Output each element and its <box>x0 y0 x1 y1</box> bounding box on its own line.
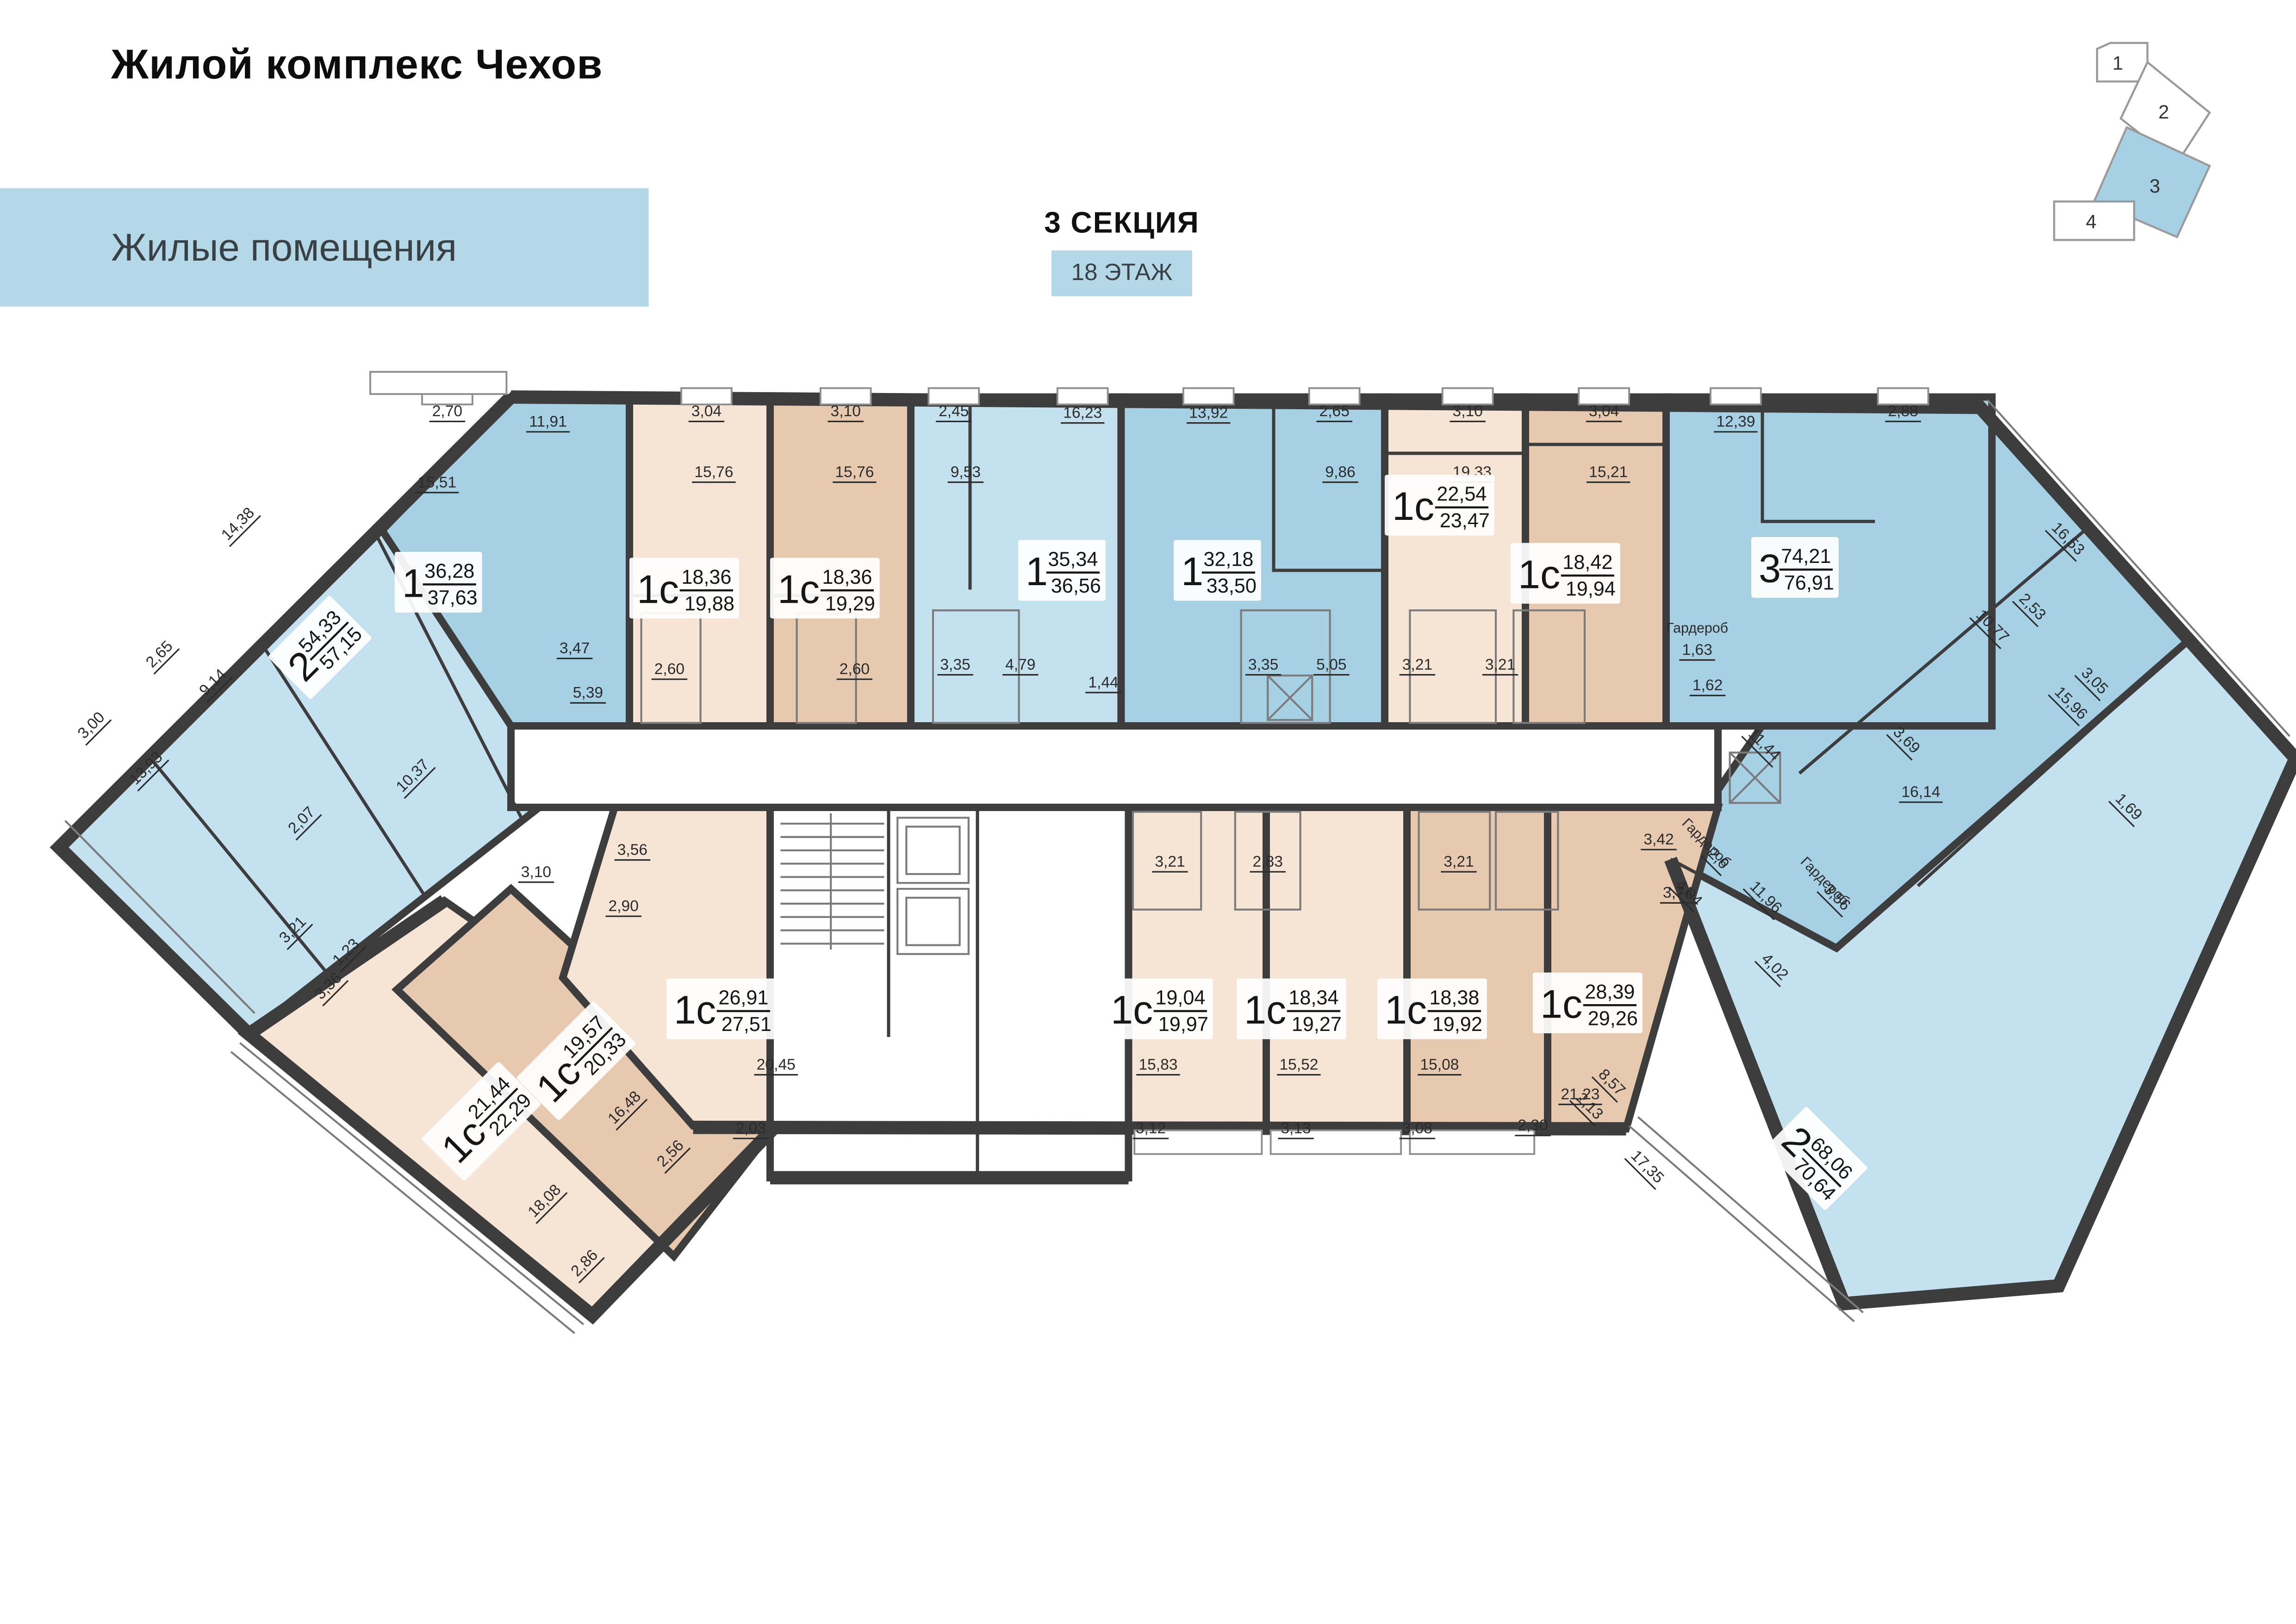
apartment-type: 1с <box>1111 988 1153 1032</box>
svg-text:3,42: 3,42 <box>1643 831 1674 848</box>
dimension-label: 3,12 <box>1133 1120 1169 1138</box>
apartment-area[interactable] <box>1266 807 1407 1126</box>
apartment-label[interactable]: 1с18,4219,94 <box>1511 543 1620 604</box>
apartment-area-top: 18,36 <box>681 566 731 588</box>
svg-text:2,70: 2,70 <box>432 403 462 420</box>
svg-text:3,10: 3,10 <box>1453 403 1483 420</box>
dimension-label: 2,65 <box>141 636 179 674</box>
minimap: 1 2 3 4 <box>2054 43 2209 240</box>
svg-text:3,00: 3,00 <box>75 709 108 742</box>
apartment-type: 1с <box>778 567 820 612</box>
legend-banner: Жилые помещения <box>0 188 649 306</box>
dimension-label: 9,53 <box>948 463 983 482</box>
dimension-label: 16,14 <box>1899 784 1942 802</box>
dimension-label: 2,60 <box>652 661 687 679</box>
apartment-label[interactable]: 1с26,9127,51 <box>666 979 776 1039</box>
apartment-label[interactable]: 1с18,3619,88 <box>629 558 739 618</box>
apartment-type: 1с <box>1392 484 1434 529</box>
svg-text:3,21: 3,21 <box>1155 853 1185 870</box>
apartment-area-top: 35,34 <box>1048 548 1098 570</box>
dimension-label: 3,21 <box>1152 853 1188 872</box>
apartment-label[interactable]: 132,1833,50 <box>1174 540 1261 600</box>
apartment-type: 1с <box>674 988 716 1032</box>
svg-text:3,35: 3,35 <box>1248 656 1278 673</box>
apartment-area-top: 32,18 <box>1203 548 1253 570</box>
dimension-label: 3,21 <box>1441 853 1476 872</box>
section-title: 3 СЕКЦИЯ <box>963 207 1281 242</box>
apartment-area-bottom: 76,91 <box>1784 572 1834 594</box>
dimension-label: 2,60 <box>837 661 872 679</box>
svg-text:11,91: 11,91 <box>529 413 567 431</box>
apartment-area[interactable] <box>1548 807 1718 1129</box>
apartment-area-top: 26,91 <box>718 987 768 1009</box>
apartment-type: 1с <box>637 567 679 612</box>
svg-text:16,23: 16,23 <box>1063 404 1102 421</box>
dimension-label: 3,35 <box>937 656 973 675</box>
dimension-label: 15,51 <box>415 474 459 493</box>
minimap-section-label: 1 <box>2112 52 2123 74</box>
apartment-area-bottom: 27,51 <box>722 1013 772 1036</box>
dimension-label: 3,35 <box>1245 656 1281 675</box>
svg-text:9,86: 9,86 <box>1325 463 1355 481</box>
apartment-area-top: 19,04 <box>1155 987 1205 1009</box>
minimap-section-label: 3 <box>2149 175 2160 197</box>
svg-text:3,21: 3,21 <box>1485 656 1515 673</box>
apartment-area-bottom: 19,27 <box>1292 1013 1342 1036</box>
dimension-label: 2,90 <box>605 898 641 916</box>
apartment-area-bottom: 29,26 <box>1588 1007 1638 1030</box>
svg-text:2,03: 2,03 <box>736 1120 766 1137</box>
floorplan-page: 2,7011,913,043,102,4516,2313,922,653,103… <box>0 0 2296 1624</box>
dimension-label: 5,05 <box>1313 656 1349 675</box>
dimension-label: 3,56 <box>615 841 650 860</box>
dimension-label: 16,23 <box>1061 404 1104 423</box>
svg-text:16,14: 16,14 <box>1901 784 1940 801</box>
dimension-label: 2,30 <box>1515 1117 1550 1136</box>
svg-text:1,63: 1,63 <box>1682 641 1712 658</box>
svg-text:2,60: 2,60 <box>654 661 684 678</box>
apartment-area-bottom: 19,94 <box>1566 578 1616 600</box>
dimension-label: 3,47 <box>557 640 592 658</box>
dimension-label: 2,70 <box>429 403 465 421</box>
svg-text:15,76: 15,76 <box>694 463 733 481</box>
svg-text:3,10: 3,10 <box>831 403 861 420</box>
svg-text:15,76: 15,76 <box>835 463 874 481</box>
apartment-area-bottom: 23,47 <box>1440 510 1490 532</box>
svg-text:15,83: 15,83 <box>1139 1056 1177 1073</box>
dimension-label: 1,62 <box>1690 677 1725 695</box>
dimension-label: 2,45 <box>936 403 971 421</box>
svg-text:15,08: 15,08 <box>1420 1056 1459 1073</box>
dimension-label: 3,10 <box>518 863 554 882</box>
dimension-label: 13,92 <box>1187 404 1230 423</box>
svg-text:3,21: 3,21 <box>1444 853 1474 870</box>
apartment-area-bottom: 19,97 <box>1158 1013 1208 1036</box>
apartment-type: 1с <box>1540 982 1582 1026</box>
svg-text:2,45: 2,45 <box>939 403 969 420</box>
dimension-label: 3,04 <box>1586 403 1622 421</box>
svg-text:2,65: 2,65 <box>143 637 176 671</box>
corridor <box>511 726 1718 807</box>
floor-chip[interactable]: 18 ЭТАЖ <box>1052 250 1192 296</box>
dimension-label: 3,08 <box>1400 1120 1435 1138</box>
svg-text:15,21: 15,21 <box>1589 463 1628 481</box>
apartment-type: 1 <box>1026 550 1048 594</box>
svg-text:3,08: 3,08 <box>1402 1120 1432 1137</box>
svg-text:12,39: 12,39 <box>1716 413 1755 431</box>
svg-text:2,65: 2,65 <box>1319 403 1350 420</box>
dimension-label: 15,08 <box>1418 1056 1461 1074</box>
dimension-label: 2,03 <box>733 1120 769 1138</box>
apartment-label[interactable]: 1с19,0419,97 <box>1103 979 1213 1039</box>
apartment-area-bottom: 36,56 <box>1051 575 1101 597</box>
svg-text:1,62: 1,62 <box>1692 677 1723 694</box>
minimap-section-label: 2 <box>2159 101 2169 123</box>
apartment-area-top: 18,38 <box>1429 987 1479 1009</box>
apartment-area-top: 36,28 <box>424 560 474 582</box>
dimension-label: 2,65 <box>1316 403 1352 421</box>
apartment-label[interactable]: 136,2837,63 <box>395 552 482 612</box>
svg-text:4,79: 4,79 <box>1005 656 1035 673</box>
apartment-area-bottom: 19,29 <box>825 593 875 615</box>
apartment-label[interactable]: 1с18,3419,27 <box>1237 979 1346 1039</box>
legend-banner-text: Жилые помещения <box>111 225 457 270</box>
svg-text:Гардероб: Гардероб <box>1666 620 1728 636</box>
dimension-label: 15,21 <box>1587 463 1630 482</box>
apartment-type: 3 <box>1759 547 1781 591</box>
apartment-area-top: 74,21 <box>1781 545 1831 568</box>
svg-text:3,10: 3,10 <box>521 863 551 881</box>
apartment-area[interactable] <box>1385 397 1525 726</box>
apartment-area-top: 18,42 <box>1562 551 1612 574</box>
svg-text:3,35: 3,35 <box>940 656 970 673</box>
apartment-label[interactable]: 1с22,5423,47 <box>1385 475 1494 536</box>
minimap-section-label: 4 <box>2086 211 2097 232</box>
dimension-label: 4,79 <box>1002 656 1038 675</box>
apartment-label[interactable]: 135,3436,56 <box>1018 540 1106 600</box>
dimension-label: 3,10 <box>1450 403 1485 421</box>
dimension-label: 3,21 <box>1400 656 1435 675</box>
page-title: Жилой комплекс Чехов <box>111 42 603 89</box>
apartment-type: 1с <box>1385 988 1427 1032</box>
apartment-area[interactable] <box>1128 807 1266 1126</box>
dimension-label: 1,63 <box>1679 641 1715 660</box>
svg-text:3,13: 3,13 <box>1281 1120 1311 1137</box>
dimension-label: 15,52 <box>1277 1056 1320 1074</box>
dimension-label: 15,83 <box>1136 1056 1180 1074</box>
svg-text:3,56: 3,56 <box>617 841 647 858</box>
dimension-label: 17,35 <box>1625 1145 1669 1189</box>
svg-text:2,30: 2,30 <box>1518 1117 1548 1134</box>
svg-text:3,12: 3,12 <box>1136 1120 1166 1137</box>
svg-text:2,88: 2,88 <box>1888 403 1918 420</box>
svg-text:3,04: 3,04 <box>691 403 722 420</box>
apartment-area[interactable] <box>1407 807 1548 1126</box>
dimension-label: 15,76 <box>692 463 735 482</box>
dimension-label: 3,04 <box>689 403 724 421</box>
apartment-type: 1с <box>1244 988 1286 1032</box>
dimension-label: 3,21 <box>1482 656 1518 675</box>
apartment-label[interactable]: 1с18,3619,29 <box>770 558 880 618</box>
dimension-label: 15,76 <box>833 463 876 482</box>
apartment-label[interactable]: 1с28,3929,26 <box>1533 973 1643 1033</box>
svg-text:3,47: 3,47 <box>560 640 590 657</box>
svg-text:9,53: 9,53 <box>951 463 981 481</box>
svg-text:3,04: 3,04 <box>1589 403 1619 420</box>
dimension-label: 2,88 <box>1885 403 1921 421</box>
dimension-label: 20,45 <box>754 1056 798 1074</box>
dimension-label: 2,83 <box>1250 853 1285 872</box>
apartment-area-top: 18,36 <box>822 566 872 588</box>
svg-text:2,83: 2,83 <box>1253 853 1283 870</box>
apartment-area-top: 22,54 <box>1437 483 1487 506</box>
apartment-area-bottom: 37,63 <box>428 587 478 609</box>
dimension-label: 11,91 <box>526 413 570 432</box>
apartment-label[interactable]: 1с18,3819,92 <box>1377 979 1487 1039</box>
apartment-area-bottom: 19,88 <box>684 593 734 615</box>
dimension-label: 3,13 <box>1278 1120 1313 1138</box>
svg-text:20,45: 20,45 <box>757 1056 796 1073</box>
apartment-label[interactable]: 374,2176,91 <box>1751 537 1839 598</box>
dimension-label: 14,38 <box>217 502 261 546</box>
svg-text:1,44: 1,44 <box>1088 674 1118 691</box>
svg-text:15,51: 15,51 <box>417 474 456 491</box>
svg-text:5,05: 5,05 <box>1316 656 1346 673</box>
dimension-label: 5,39 <box>570 684 606 703</box>
svg-text:5,39: 5,39 <box>573 684 603 701</box>
apartment-area-top: 28,39 <box>1585 981 1635 1003</box>
svg-text:2,60: 2,60 <box>840 661 870 678</box>
svg-text:13,92: 13,92 <box>1189 404 1228 421</box>
dimension-label: 1,44 <box>1085 674 1121 693</box>
dimension-label: 3,42 <box>1641 831 1676 849</box>
dimension-label: 3,10 <box>828 403 863 421</box>
svg-text:2,90: 2,90 <box>609 898 639 915</box>
apartment-area-bottom: 33,50 <box>1207 575 1257 597</box>
dimension-label: 12,39 <box>1714 413 1757 432</box>
apartment-area-top: 18,34 <box>1288 987 1338 1009</box>
svg-text:15,52: 15,52 <box>1279 1056 1318 1073</box>
svg-text:3,21: 3,21 <box>1402 656 1432 673</box>
room-name-label: Гардероб <box>1666 620 1728 636</box>
dimension-label: 3,00 <box>73 707 111 745</box>
apartment-type: 1 <box>1181 550 1203 594</box>
apartment-type: 1с <box>1518 552 1560 597</box>
apartment-area-bottom: 19,92 <box>1432 1013 1482 1036</box>
apartment-type: 1 <box>402 562 424 606</box>
dimension-label: 9,86 <box>1322 463 1358 482</box>
